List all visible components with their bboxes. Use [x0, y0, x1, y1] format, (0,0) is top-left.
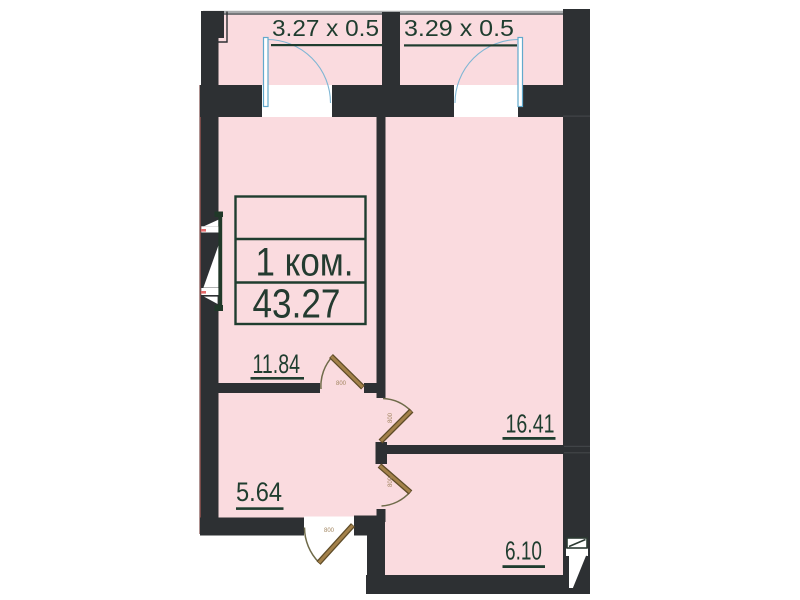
svg-text:3.29 x 0.5: 3.29 x 0.5: [404, 15, 514, 41]
svg-text:43.27: 43.27: [253, 281, 341, 327]
svg-text:800: 800: [388, 412, 394, 423]
svg-text:11.84: 11.84: [253, 349, 301, 379]
svg-text:16.41: 16.41: [506, 409, 555, 439]
svg-text:800: 800: [324, 528, 335, 534]
svg-text:800: 800: [336, 381, 347, 387]
svg-text:5.64: 5.64: [236, 477, 282, 507]
svg-text:3.27 x 0.5: 3.27 x 0.5: [272, 15, 379, 41]
svg-text:800: 800: [388, 476, 394, 487]
svg-text:1 ком.: 1 ком.: [256, 240, 354, 284]
svg-text:6.10: 6.10: [505, 536, 542, 566]
